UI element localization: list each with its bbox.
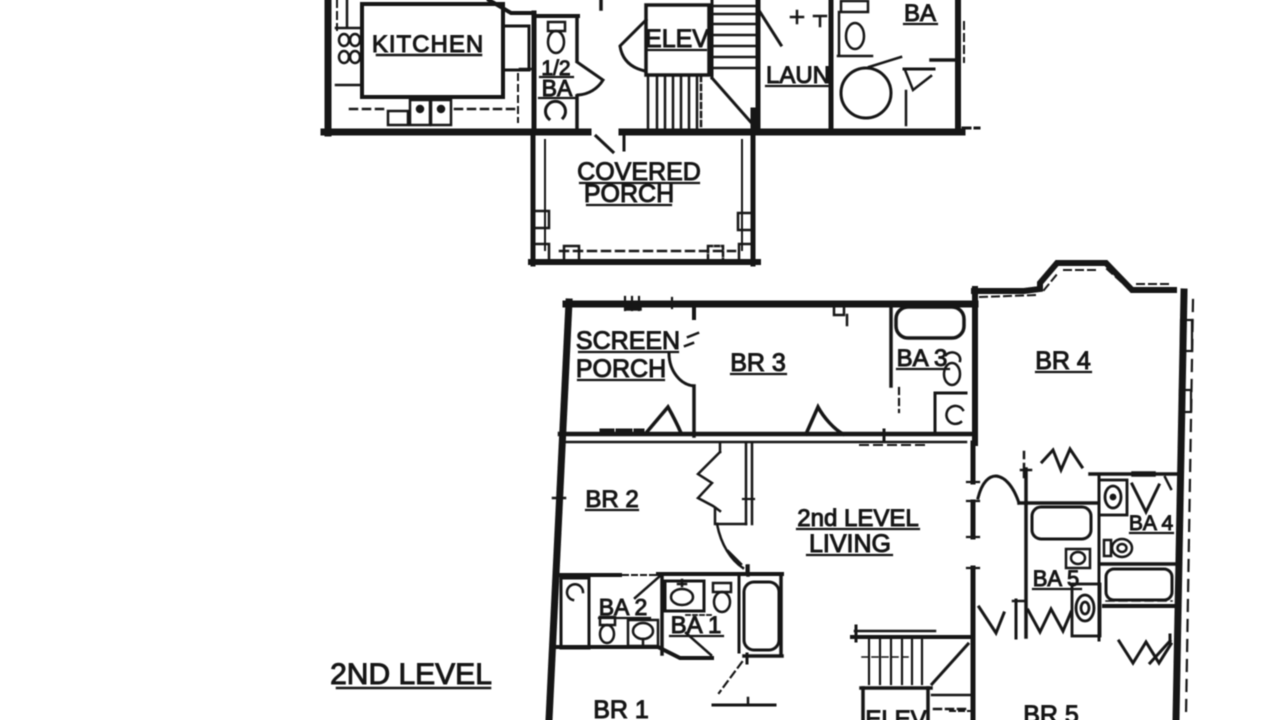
svg-text:ELEV: ELEV bbox=[645, 25, 709, 53]
svg-text:ELEV: ELEV bbox=[865, 706, 926, 720]
svg-text:BR 1: BR 1 bbox=[593, 696, 649, 720]
svg-text:SCREEN: SCREEN bbox=[576, 327, 680, 355]
svg-text:BR 5: BR 5 bbox=[1023, 701, 1079, 720]
svg-text:PORCH: PORCH bbox=[576, 355, 666, 383]
svg-text:LIVING: LIVING bbox=[809, 530, 891, 558]
svg-text:BA 4: BA 4 bbox=[1129, 512, 1174, 535]
svg-text:2ND LEVEL: 2ND LEVEL bbox=[330, 658, 492, 691]
svg-text:BR 4: BR 4 bbox=[1035, 347, 1091, 375]
svg-text:BR 3: BR 3 bbox=[730, 349, 786, 377]
svg-text:PORCH: PORCH bbox=[584, 180, 674, 208]
